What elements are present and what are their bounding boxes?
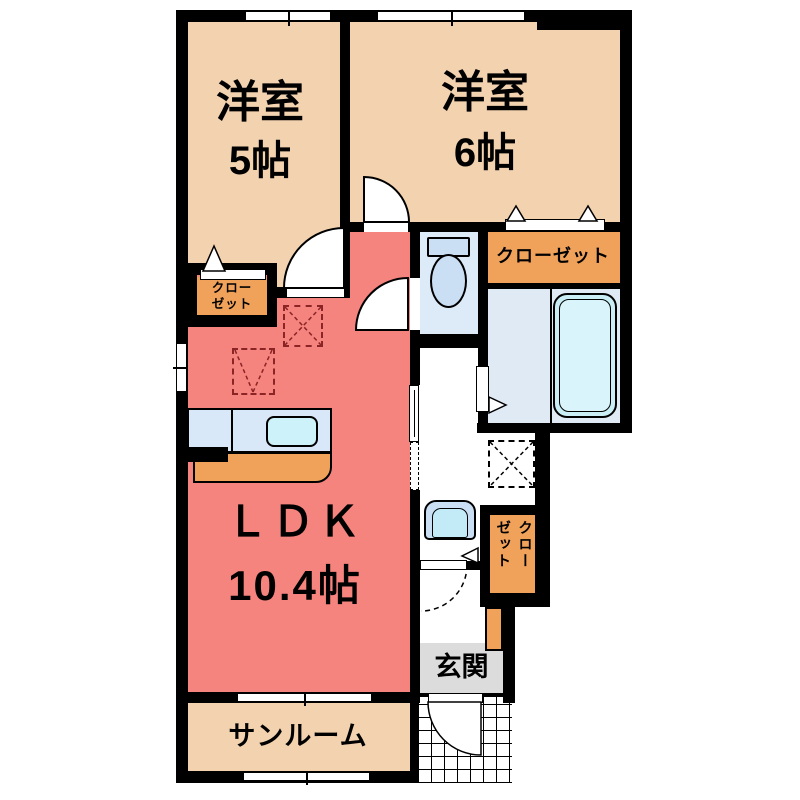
washroom-door-triangle	[462, 548, 478, 563]
refrigerator-v-line	[235, 350, 253, 392]
folding-door-triangle	[507, 206, 525, 221]
refrigerator-v-line	[253, 350, 272, 392]
bedroom5-size: 5帖	[180, 140, 340, 182]
door-swing-bedroom5	[284, 228, 344, 288]
door-swing-front	[428, 702, 481, 755]
door-swing-bedroom6	[364, 177, 409, 222]
bedroom6-label: 洋室	[400, 70, 570, 116]
folding-door-triangle	[579, 206, 597, 221]
folding-door-triangle	[203, 246, 225, 271]
door-swing-layer	[0, 0, 800, 800]
bedroom5-label: 洋室	[180, 80, 340, 126]
closet-top-label: クローゼット	[488, 247, 618, 266]
closet-lower-label: クローゼット	[494, 520, 534, 578]
ldk-size: 10.4帖	[185, 564, 405, 608]
door-swing-toilet	[356, 278, 408, 330]
bedroom6-size: 6帖	[400, 132, 570, 174]
closet-small-label: クロー ゼット	[198, 281, 266, 312]
closet-small-line1: クロー	[212, 281, 253, 295]
floor-plan: 洋室 5帖 洋室 6帖 ＬＤＫ 10.4帖 サンルーム 玄関 クローゼット クロ…	[0, 0, 800, 800]
bathroom-door-triangle	[489, 397, 506, 413]
sunroom-label: サンルーム	[198, 722, 398, 750]
entrance-label: 玄関	[420, 653, 503, 681]
ldk-label: ＬＤＫ	[195, 500, 395, 544]
door-swing-washroom-dashed	[421, 565, 467, 611]
closet-small-line2: ゼット	[212, 297, 253, 311]
